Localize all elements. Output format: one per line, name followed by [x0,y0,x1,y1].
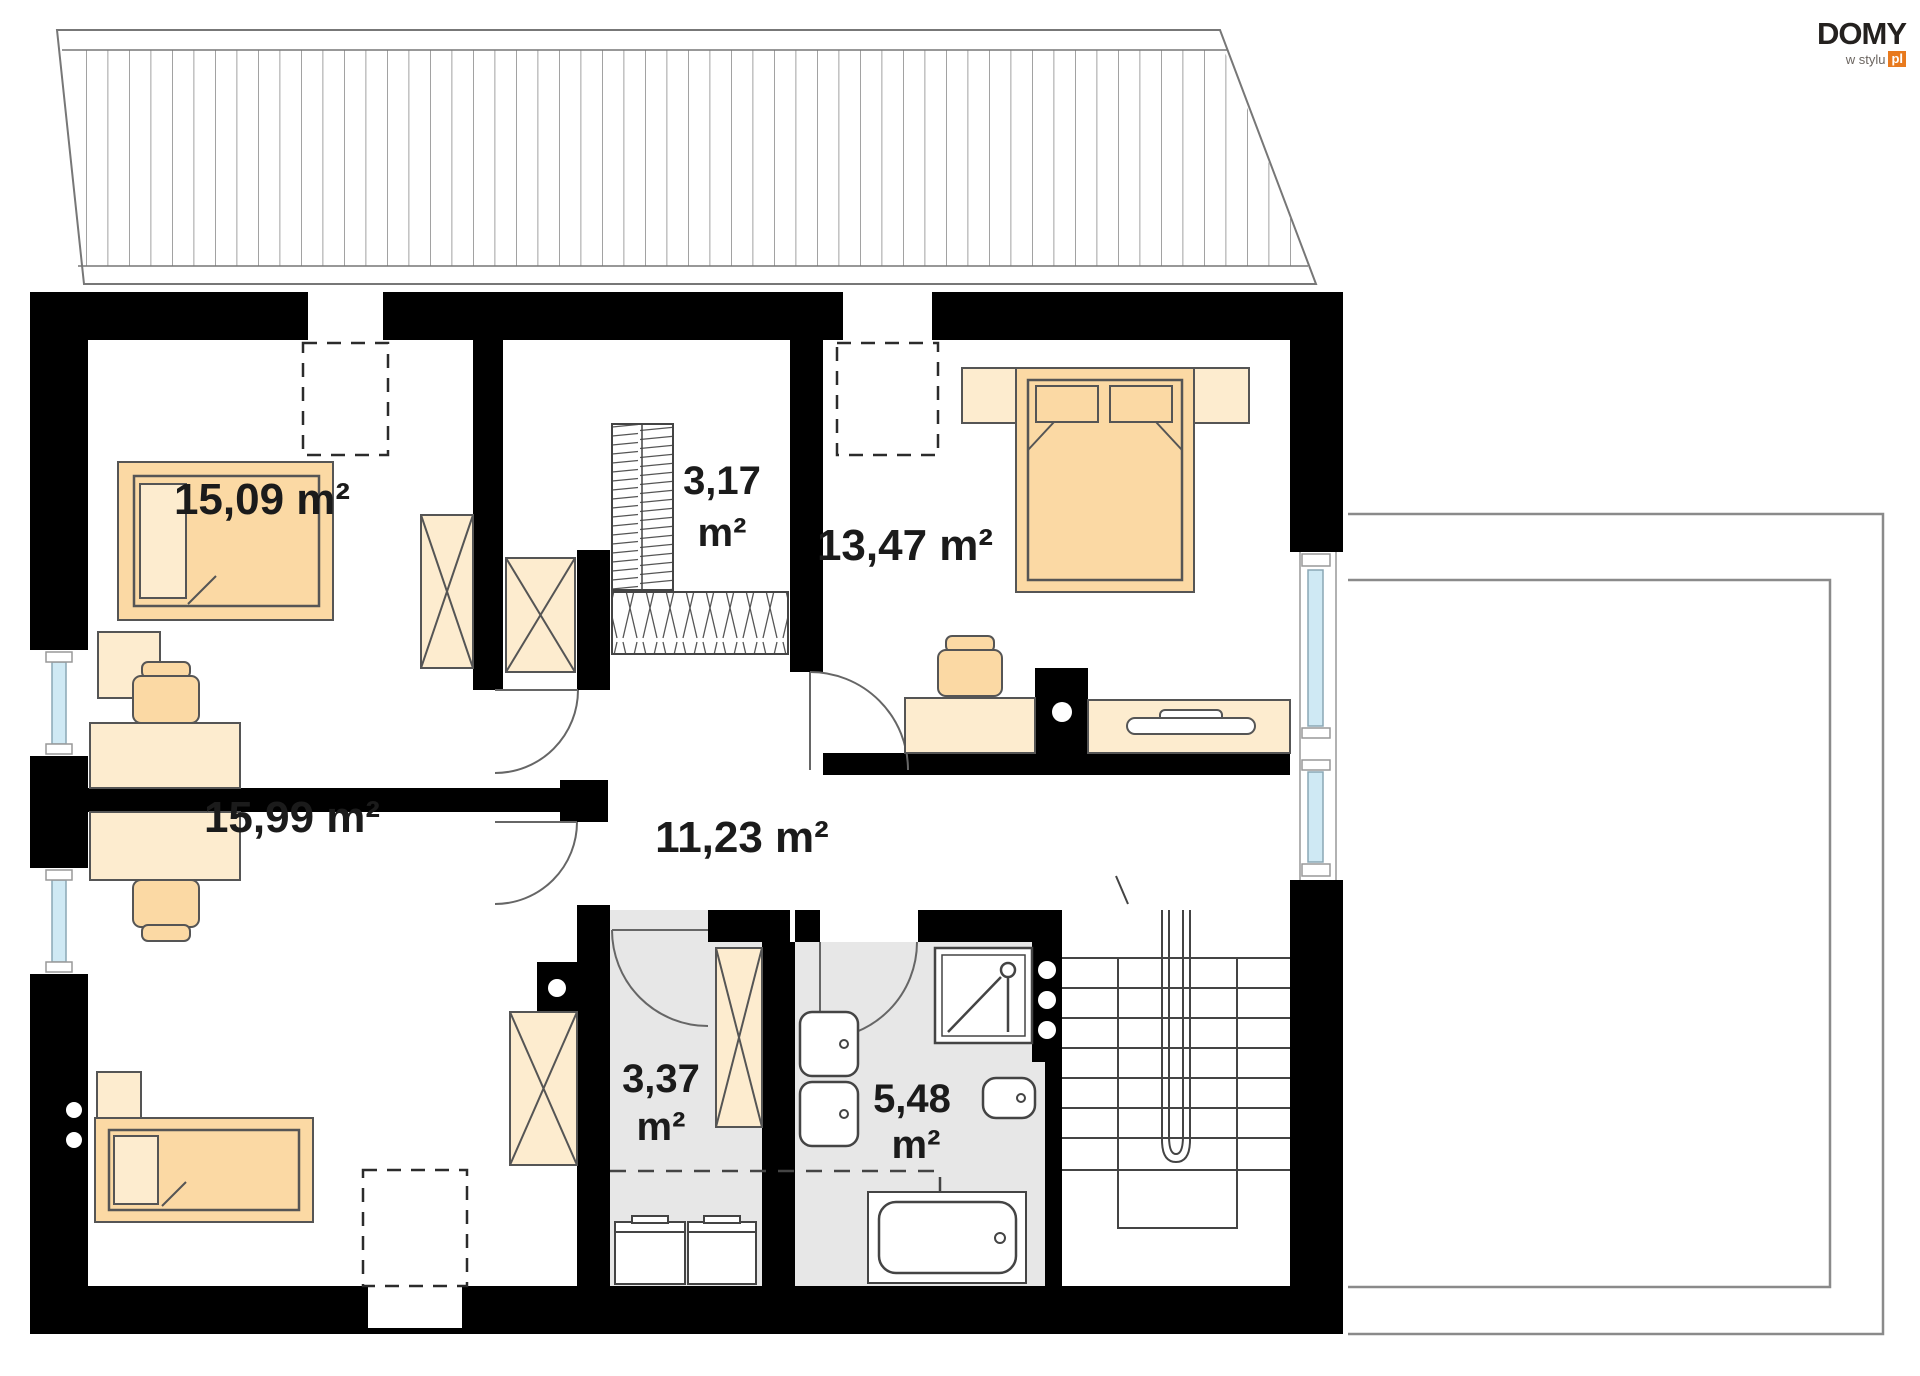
room-area-unit: m² [698,511,747,555]
room-area-label: 15,99 m² [204,793,380,842]
door-bedroom-bottom-left [495,822,577,904]
floor-plan-page: 15,09 m² 3,17 m² 13,47 m² 11,23 m² 15,99… [0,0,1920,1376]
brand-name: DOMY [1817,18,1906,49]
brand-tagline: w stylu [1846,53,1886,66]
wardrobe-x-1 [421,515,473,668]
double-bed [962,368,1249,592]
room-area-label: 3,17 [683,459,761,503]
brand-tld-badge: pl [1888,51,1906,67]
room-area-unit: m² [637,1105,686,1149]
window-right [1290,552,1343,880]
single-bed-2 [95,1118,313,1222]
room-area-label: 15,09 m² [174,475,350,524]
desk-right [905,698,1035,753]
room-area-label: 3,37 [622,1057,700,1101]
window-left-2 [30,868,88,974]
wardrobe-x-laundry [716,948,762,1127]
room-area-label: 13,47 m² [817,521,993,570]
shower [935,948,1032,1043]
room-area-unit: m² [892,1123,941,1167]
closet-shelf [612,592,788,654]
roof-overhang [57,30,1316,284]
desk-chair-bottom [133,880,199,941]
desk-chair-right [938,636,1002,696]
wardrobe-x-hall [506,558,575,672]
staircase [1062,876,1290,1228]
stair-handrail [1162,910,1190,1162]
wardrobe-x-2 [510,1012,577,1165]
toilet [983,1078,1035,1118]
brand-logo: DOMY w stylu pl [1817,18,1906,67]
exterior-wall-left [30,292,88,1334]
dresser-tv [1088,700,1290,753]
washing-machine-2 [688,1216,756,1284]
exterior-wall-top [30,292,1343,340]
desk-chair-top [133,662,199,723]
exterior-wall-bottom [30,1286,1343,1334]
door-bedroom-top-left [495,690,578,773]
nightstand-2 [97,1072,141,1118]
closet-rail [612,424,673,590]
room-area-label: 5,48 [873,1077,951,1121]
washing-machine-1 [615,1216,685,1284]
sink-1 [800,1012,858,1076]
window-left-1 [30,650,88,756]
sink-2 [800,1082,858,1146]
bathtub [868,1192,1026,1283]
room-area-label: 11,23 m² [655,813,829,862]
terrace-outline [1348,514,1883,1334]
floor-plan-drawing: 15,09 m² 3,17 m² 13,47 m² 11,23 m² 15,99… [0,0,1920,1376]
